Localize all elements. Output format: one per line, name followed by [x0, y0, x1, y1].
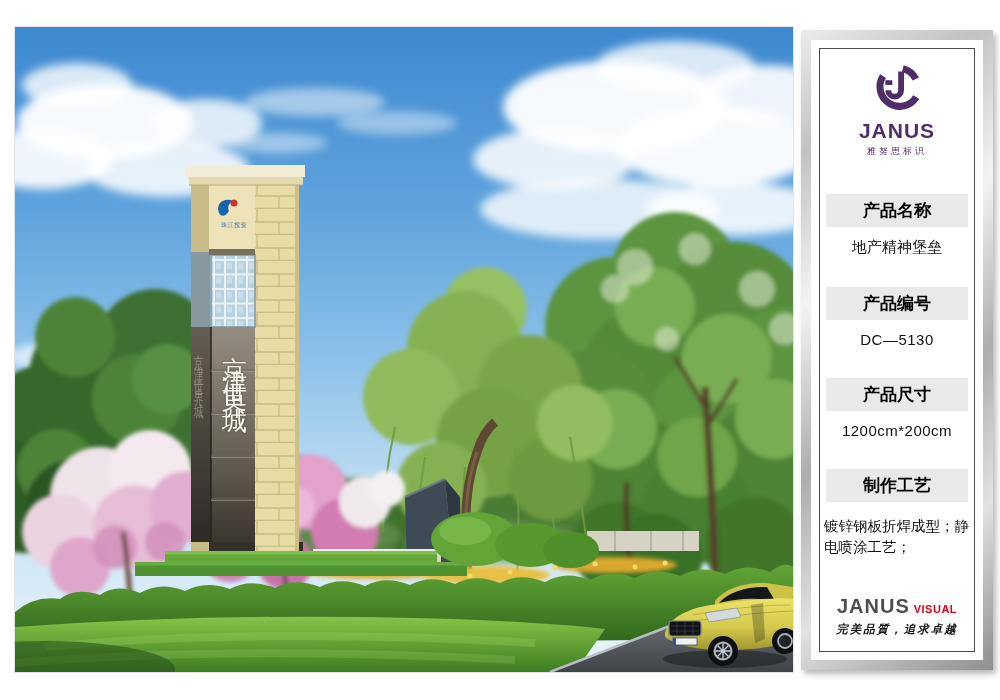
janus-logo-icon: [869, 61, 925, 117]
company-logo-block: JANUS 雅努思标识: [859, 61, 935, 158]
panel-footer: JANUS VISUAL 完美品質，追求卓越: [836, 595, 958, 639]
product-name-value: 地产精神堡垒: [852, 238, 942, 257]
lawn: [15, 617, 605, 672]
section-header-product-name: 产品名称: [826, 194, 968, 227]
section-header-product-number: 产品编号: [826, 287, 968, 320]
brand-subtitle: 雅努思标识: [867, 145, 927, 158]
glass-blocks-side: [191, 252, 211, 330]
section-header-product-size: 产品尺寸: [826, 378, 968, 411]
product-number-value: DC—5130: [860, 331, 934, 348]
info-panel-border-box: JANUS 雅努思标识 产品名称 地产精神堡垒 产品编号 DC—5130 产品尺…: [819, 48, 975, 652]
footer-brand-name: JANUS: [837, 595, 910, 618]
product-render-image: 珠江投资: [15, 27, 793, 672]
hedge-steps: [135, 551, 467, 576]
car-license-plate: [673, 638, 697, 645]
catalog-page: 珠江投资: [0, 0, 1000, 700]
info-panel: JANUS 雅努思标识 产品名称 地产精神堡垒 产品编号 DC—5130 产品尺…: [811, 40, 983, 660]
footer-brand-suffix: VISUAL: [914, 603, 957, 615]
tower-cornice: [185, 165, 305, 177]
process-value: 镀锌钢板折焊成型；静电喷涂工艺；: [824, 516, 970, 558]
footer-brand-line: JANUS VISUAL: [837, 595, 957, 618]
section-header-process: 制作工艺: [826, 469, 968, 502]
tower-sign-side-text: 京津世界城: [192, 342, 205, 542]
tower-sign-text: 京津世界城: [219, 336, 252, 546]
info-panel-frame: JANUS 雅努思标识 产品名称 地产精神堡垒 产品编号 DC—5130 产品尺…: [801, 30, 993, 670]
footer-slogan: 完美品質，追求卓越: [836, 622, 958, 637]
brand-name: JANUS: [859, 119, 935, 143]
glass-blocks: [211, 255, 255, 327]
product-size-value: 1200cm*200cm: [842, 422, 952, 439]
tower-logo-panel: [209, 185, 255, 255]
tower-stone-column: [255, 169, 299, 562]
tower-developer-logo-text: 珠江投资: [221, 221, 247, 228]
scene-illustration: 珠江投资: [15, 27, 793, 672]
